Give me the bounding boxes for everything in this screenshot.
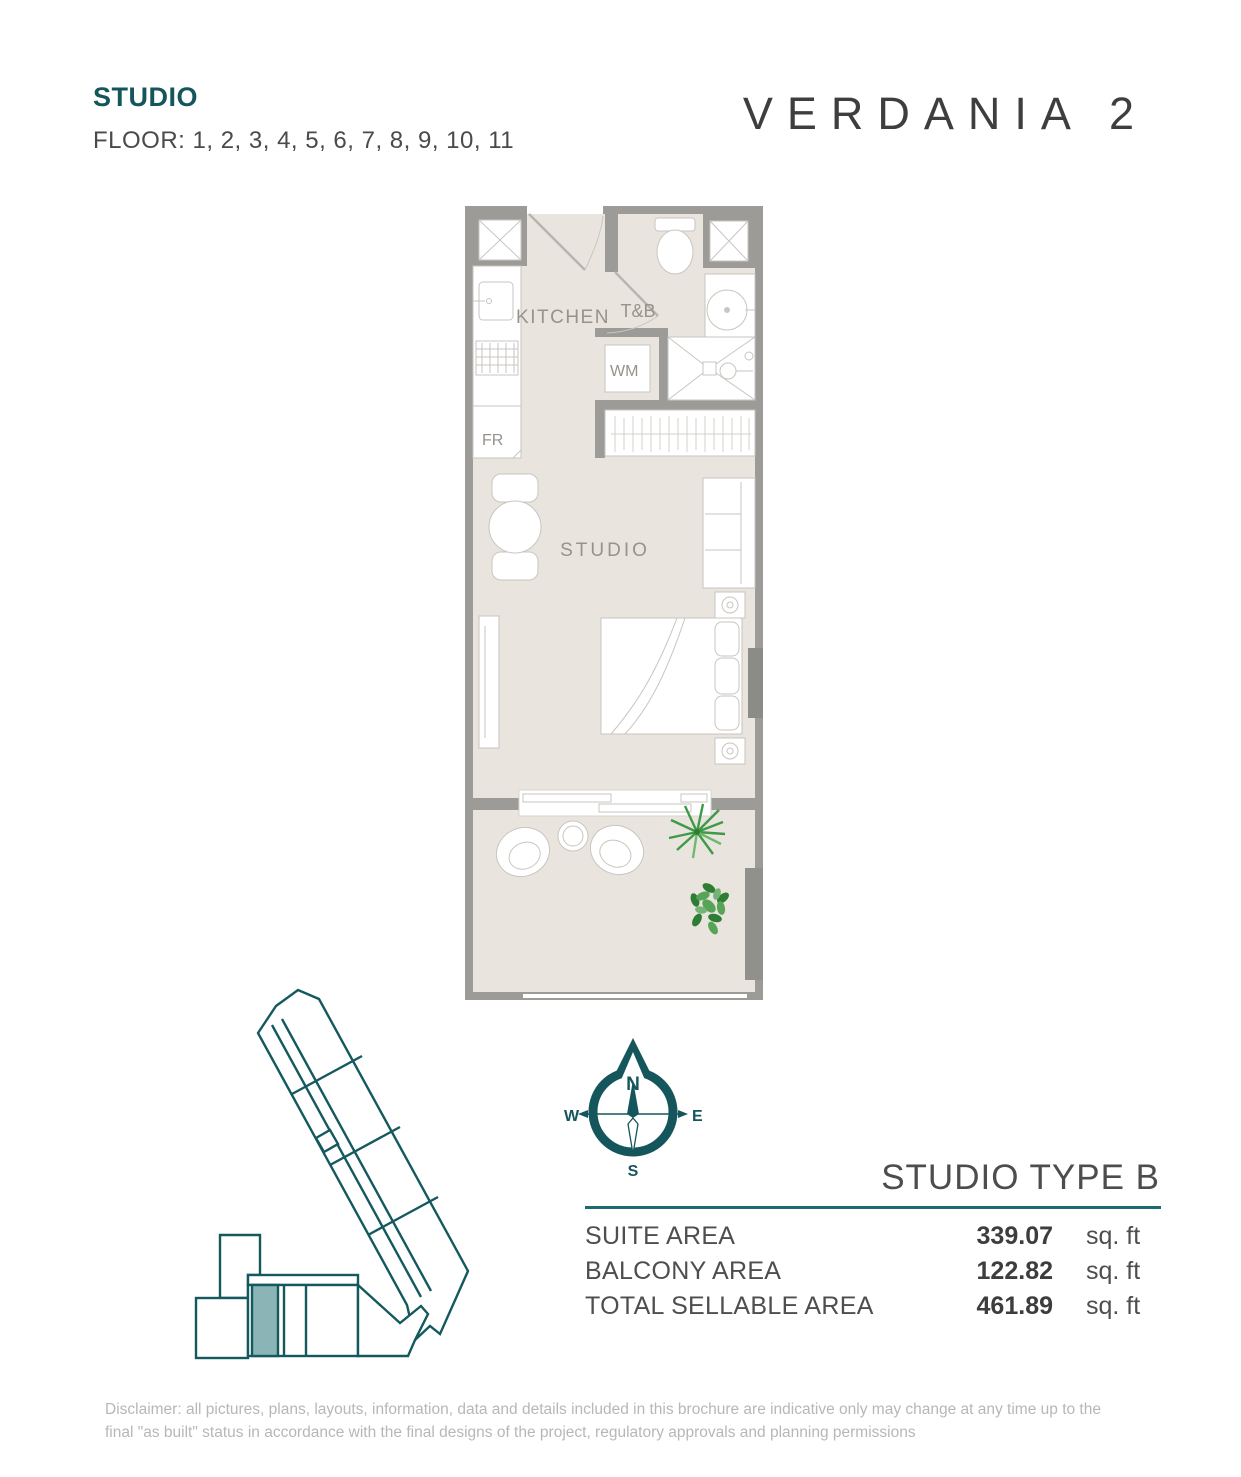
- sofa: [703, 478, 755, 588]
- compass-rose: N W E S: [558, 1028, 708, 1180]
- area-table: SUITE AREA 339.07 sq. ft BALCONY AREA 12…: [585, 1222, 1161, 1327]
- total-area-row: TOTAL SELLABLE AREA 461.89 sq. ft: [585, 1292, 1161, 1327]
- unit-type-title: STUDIO: [93, 82, 514, 113]
- floor-list: FLOOR: 1, 2, 3, 4, 5, 6, 7, 8, 9, 10, 11: [93, 127, 514, 155]
- area-row-unit: sq. ft: [1086, 1292, 1161, 1321]
- area-row-value: 339.07: [953, 1222, 1053, 1251]
- dining-table: [489, 474, 541, 580]
- fridge-label: FR: [482, 432, 503, 449]
- sliding-door: [519, 790, 711, 816]
- console-table: [479, 616, 499, 748]
- shower: [668, 337, 755, 400]
- area-row-label: SUITE AREA: [585, 1222, 953, 1251]
- shaft-left: [473, 214, 527, 266]
- area-row-value: 461.89: [953, 1292, 1053, 1321]
- suite-area-row: SUITE AREA 339.07 sq. ft: [585, 1222, 1161, 1257]
- area-row-value: 122.82: [953, 1257, 1053, 1286]
- shaft-right: [703, 214, 755, 268]
- toilet: [655, 218, 695, 274]
- kitchen-counter: [473, 266, 521, 458]
- compass-east-label: E: [692, 1108, 703, 1125]
- area-row-label: BALCONY AREA: [585, 1257, 953, 1286]
- highlighted-unit: [252, 1285, 278, 1356]
- kitchen-label: KITCHEN: [516, 307, 610, 328]
- building-key-plan: [178, 988, 488, 1370]
- floor-plan-drawing: FR WM KITCHEN T&: [465, 206, 763, 1000]
- closet: [605, 410, 755, 456]
- washing-machine-label: WM: [610, 363, 638, 380]
- area-row-unit: sq. ft: [1086, 1222, 1161, 1251]
- divider-line: [585, 1206, 1161, 1209]
- disclaimer-text: Disclaimer: all pictures, plans, layouts…: [105, 1398, 1120, 1444]
- brochure-page: { "header": { "unit_type": "STUDIO", "fl…: [0, 0, 1241, 1477]
- balcony-area-row: BALCONY AREA 122.82 sq. ft: [585, 1257, 1161, 1292]
- area-row-label: TOTAL SELLABLE AREA: [585, 1292, 953, 1321]
- area-row-unit: sq. ft: [1086, 1257, 1161, 1286]
- compass-west-label: W: [564, 1108, 580, 1125]
- unit-header: STUDIO FLOOR: 1, 2, 3, 4, 5, 6, 7, 8, 9,…: [93, 82, 514, 155]
- compass-south-label: S: [628, 1163, 639, 1180]
- toilet-bath-label: T&B: [620, 301, 655, 321]
- brand-logo: VERDANIA 2: [743, 88, 1148, 140]
- studio-label: STUDIO: [560, 540, 650, 561]
- unit-type-b-title: STUDIO TYPE B: [881, 1158, 1160, 1198]
- bed: [601, 618, 742, 734]
